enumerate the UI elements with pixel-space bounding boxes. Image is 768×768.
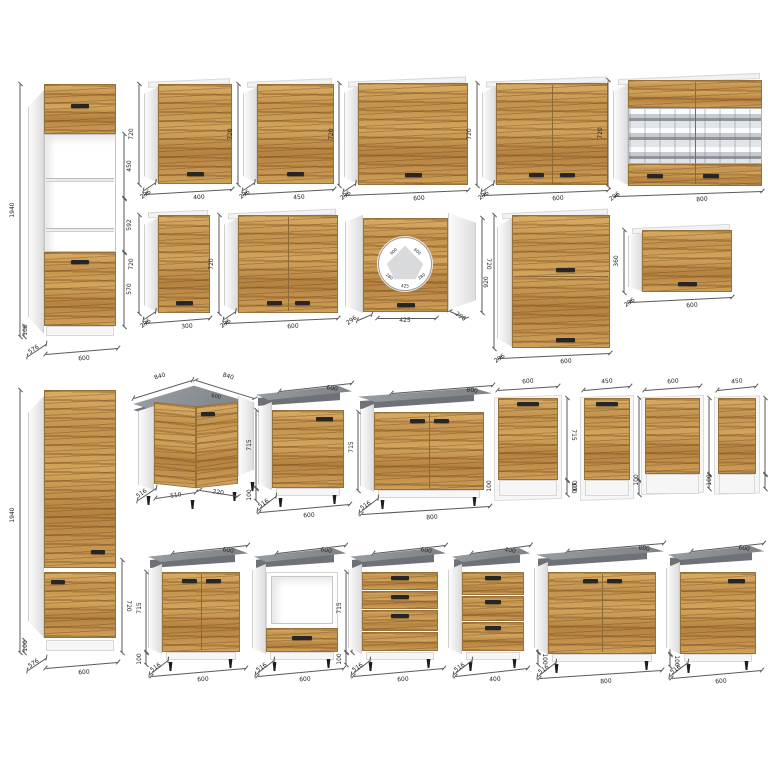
dimension-line <box>482 219 483 313</box>
side-panel <box>497 218 512 347</box>
dimension-label: 715 <box>349 441 355 452</box>
cabinet-leg <box>168 662 173 671</box>
dimension-label: 360 <box>614 255 620 266</box>
door-front <box>358 83 468 185</box>
dimension-label: 450 <box>731 379 743 386</box>
dimension-line <box>146 318 210 324</box>
door-handle <box>703 174 719 178</box>
dimension-line <box>146 573 147 653</box>
door-handle <box>678 282 697 286</box>
plinth <box>46 326 114 336</box>
side-panel <box>138 406 154 490</box>
door-handle <box>607 579 622 583</box>
drawer-front <box>362 572 438 590</box>
door-handle <box>292 636 312 640</box>
dimension-label: 720 <box>329 128 335 139</box>
dimension-label: 720 <box>129 258 135 269</box>
door-handle <box>71 260 89 264</box>
door-handle <box>434 419 449 423</box>
plinth <box>499 480 557 496</box>
door-handle <box>397 303 415 307</box>
door-front <box>512 215 610 348</box>
side-panel <box>448 564 462 654</box>
side-panel <box>144 218 158 312</box>
dishwasher-door <box>718 398 756 474</box>
dimension-label: 715 <box>247 439 253 450</box>
dimension-label: 296 <box>494 353 507 364</box>
dimension-label: 600 <box>397 677 409 684</box>
dimension-label: 715 <box>337 602 343 613</box>
side-panel <box>534 562 548 654</box>
dimension-line <box>378 318 436 319</box>
side-panel <box>348 564 362 654</box>
dishwasher-door <box>645 398 700 474</box>
door-handle <box>556 268 575 272</box>
dimension-label: 600 <box>78 356 90 363</box>
dimension-line <box>124 199 125 253</box>
cabinet-leg <box>554 664 559 673</box>
dimension-label: 720 <box>125 600 131 611</box>
door-front <box>158 84 232 184</box>
dimension-label: 600 <box>686 303 698 310</box>
dimension-line <box>226 318 338 324</box>
dimension-label: 600 <box>715 679 727 686</box>
dimension-label: 720 <box>485 258 491 269</box>
door-handle <box>529 173 544 177</box>
door-handle <box>485 600 501 604</box>
door-handle <box>91 550 105 554</box>
dimension-line <box>20 85 21 337</box>
dimension-line <box>567 481 568 495</box>
side-panel <box>344 86 358 184</box>
dimension-line <box>256 489 257 501</box>
dimension-line <box>238 85 239 185</box>
side-panel <box>482 86 496 184</box>
dimension-line <box>24 641 25 653</box>
side-panel <box>144 87 158 183</box>
dimension-label: 840 <box>222 373 235 382</box>
cabinet-leg <box>744 661 749 670</box>
cabinet-leg <box>512 659 517 668</box>
dimension-label: 296 <box>609 191 622 202</box>
door-seam <box>429 414 430 488</box>
dimension-line <box>146 653 147 665</box>
shelf <box>46 228 114 232</box>
cabinet-leg <box>686 664 691 673</box>
dimension-label: 100 <box>337 653 343 664</box>
door-handle <box>176 301 193 305</box>
dimension-label: 600 <box>522 379 534 386</box>
dimension-label: 800 <box>600 679 612 686</box>
door-handle <box>647 174 663 178</box>
side-panel <box>258 402 272 490</box>
door-handle <box>517 402 539 406</box>
door-seam <box>201 574 202 650</box>
door-handle <box>187 172 204 176</box>
dimension-line <box>630 297 732 303</box>
dimension-label: 300 <box>181 324 193 331</box>
door-front <box>257 84 334 184</box>
dimension-label: 400 <box>489 677 501 684</box>
dimension-line <box>709 399 710 475</box>
dimension-label: 600 <box>78 670 90 677</box>
plinth <box>270 652 334 660</box>
dimension-line <box>146 189 232 195</box>
side-panel <box>238 396 254 476</box>
dimension-line <box>624 231 625 293</box>
side-panel <box>224 218 238 312</box>
side-panel <box>28 396 44 638</box>
dimension-line <box>346 190 468 196</box>
dimension-line <box>256 411 257 489</box>
dimension-line <box>718 386 756 391</box>
plinth <box>166 652 236 660</box>
dimension-line <box>245 189 334 195</box>
dimension-label: 600 <box>197 677 209 684</box>
door-handle <box>201 412 215 416</box>
dimension-label: 600 <box>299 677 311 684</box>
dimension-label: 100 <box>137 653 143 664</box>
door-handle <box>556 338 575 342</box>
door-front <box>154 402 196 488</box>
dimension-line <box>346 573 347 653</box>
cabinet-leg <box>644 661 649 670</box>
dimension-line <box>346 653 347 665</box>
door-handle <box>182 579 197 583</box>
dimension-line <box>477 84 478 186</box>
side-panel <box>613 84 628 185</box>
side-panel <box>243 87 257 183</box>
dimension-line <box>765 399 766 475</box>
plinth <box>585 480 629 496</box>
dimension-line <box>500 353 610 359</box>
dimension-line <box>46 662 118 669</box>
side-panel <box>252 564 266 654</box>
plinth <box>719 474 755 494</box>
dimension-label: 720 <box>129 128 135 139</box>
dimension-line <box>484 190 608 196</box>
dimension-line <box>567 399 568 481</box>
dimension-label: 600 <box>667 379 679 386</box>
catalog-canvas: 1940450592570100576600720400296720450296… <box>0 0 768 768</box>
dimension-line <box>608 81 609 187</box>
side-panel <box>628 232 642 291</box>
door-handle <box>596 402 618 406</box>
dimension-line <box>124 253 125 327</box>
dimension-label: 800 <box>696 197 708 204</box>
plinth <box>552 654 652 662</box>
door-handle <box>405 173 422 177</box>
dimension-line <box>498 386 558 391</box>
dimension-label: 600 <box>287 324 299 331</box>
dimension-label: 100 <box>634 474 640 485</box>
dimension-line <box>670 655 671 667</box>
side-panel <box>360 404 374 492</box>
dimension-label: 720 <box>209 258 215 269</box>
cabinet-leg <box>326 659 331 668</box>
plinth <box>46 640 114 651</box>
dishwasher-door <box>498 398 558 480</box>
cabinet-leg <box>146 496 151 505</box>
plinth <box>466 652 520 660</box>
plinth <box>684 654 752 662</box>
dishwasher-door <box>584 398 630 480</box>
dimension-label: 600 <box>413 196 425 203</box>
door-seam <box>288 217 289 311</box>
dimension-label: 100 <box>247 489 253 500</box>
dimension-line <box>639 399 640 481</box>
drawer-front <box>362 591 438 609</box>
shelf <box>46 178 114 182</box>
cabinet-leg <box>278 498 283 507</box>
door-seam <box>695 82 696 184</box>
side-panel <box>148 564 162 654</box>
dimension-label: 720 <box>228 128 234 139</box>
dimension-line <box>20 391 21 653</box>
dimension-label: 715 <box>570 429 576 440</box>
door-handle <box>410 419 425 423</box>
dimension-label: 720 <box>598 127 604 138</box>
oven-niche <box>271 576 333 624</box>
dimension-line <box>494 216 495 349</box>
drawer-front <box>362 632 438 651</box>
door-handle <box>71 104 89 108</box>
dimension-label: 600 <box>303 513 315 520</box>
dimension-label: 720 <box>467 128 473 139</box>
dimension-label: 450 <box>127 160 133 171</box>
dimension-label: 1940 <box>10 202 16 217</box>
dimension-label: 425 <box>401 285 409 289</box>
door-handle <box>267 301 282 305</box>
door-handle <box>583 579 598 583</box>
side-panel <box>666 562 680 654</box>
door-seam <box>514 276 608 277</box>
door-handle <box>728 579 745 583</box>
door-handle <box>51 580 65 584</box>
side-panel <box>448 213 476 310</box>
cabinet-leg <box>190 500 195 509</box>
door-handle <box>206 579 221 583</box>
dimension-label: 600 <box>560 359 572 366</box>
dimension-label: 840 <box>154 373 167 382</box>
door-handle <box>295 301 310 305</box>
dimension-line <box>139 216 140 314</box>
dimension-label: 715 <box>137 602 143 613</box>
door-front <box>272 410 344 488</box>
door-handle <box>316 417 333 421</box>
cabinet-leg <box>368 662 373 671</box>
side-panel <box>345 215 363 313</box>
door-front <box>158 215 210 313</box>
dimension-line <box>538 653 539 665</box>
door-handle <box>287 172 304 176</box>
dimension-label: 592 <box>127 219 133 230</box>
dimension-line <box>139 85 140 185</box>
door-handle <box>391 576 409 580</box>
drawer-front <box>44 84 116 134</box>
dimension-line <box>645 386 700 391</box>
dimension-line <box>339 84 340 186</box>
dimension-line <box>765 475 766 489</box>
dimension-line <box>24 327 25 337</box>
dimension-line <box>616 191 762 197</box>
dimension-label: 296 <box>624 297 637 308</box>
plinth <box>366 652 434 660</box>
door-handle <box>391 614 409 618</box>
dimension-label: 920 <box>484 276 490 287</box>
dimension-line <box>122 561 123 653</box>
dimension-label: 1940 <box>10 507 16 522</box>
dimension-label: 100 <box>573 480 579 491</box>
cabinet-leg <box>380 500 385 509</box>
door-handle <box>560 173 575 177</box>
dimension-line <box>358 413 359 491</box>
plinth <box>646 474 699 494</box>
dimension-line <box>46 348 118 355</box>
door-seam <box>552 85 553 183</box>
cabinet-leg <box>332 495 337 504</box>
dimension-label: 400 <box>193 195 205 202</box>
dimension-label: 600 <box>552 196 564 203</box>
dimension-label: 570 <box>127 283 133 294</box>
dimension-label: 450 <box>293 195 305 202</box>
dimension-line <box>219 216 220 314</box>
side-panel <box>28 90 44 334</box>
dimension-label: 800 <box>426 515 438 522</box>
plinth <box>378 490 480 498</box>
dimension-label: 100 <box>707 474 713 485</box>
dimension-line <box>584 386 630 391</box>
plinth <box>276 488 340 496</box>
cabinet-leg <box>228 659 233 668</box>
cabinet-leg <box>272 662 277 671</box>
drawer-front <box>266 628 338 652</box>
door-front <box>680 572 756 654</box>
cabinet-leg <box>472 497 477 506</box>
door-handle <box>485 626 501 630</box>
door-handle <box>485 576 501 580</box>
door-front <box>44 390 116 568</box>
dimension-line <box>358 314 372 321</box>
door-seam <box>602 574 603 652</box>
dimension-label: 450 <box>601 379 613 386</box>
dimension-line <box>124 135 125 199</box>
door-handle <box>391 595 409 599</box>
niche <box>44 134 116 252</box>
dimension-label: 100 <box>487 480 493 491</box>
cabinet-leg <box>426 659 431 668</box>
